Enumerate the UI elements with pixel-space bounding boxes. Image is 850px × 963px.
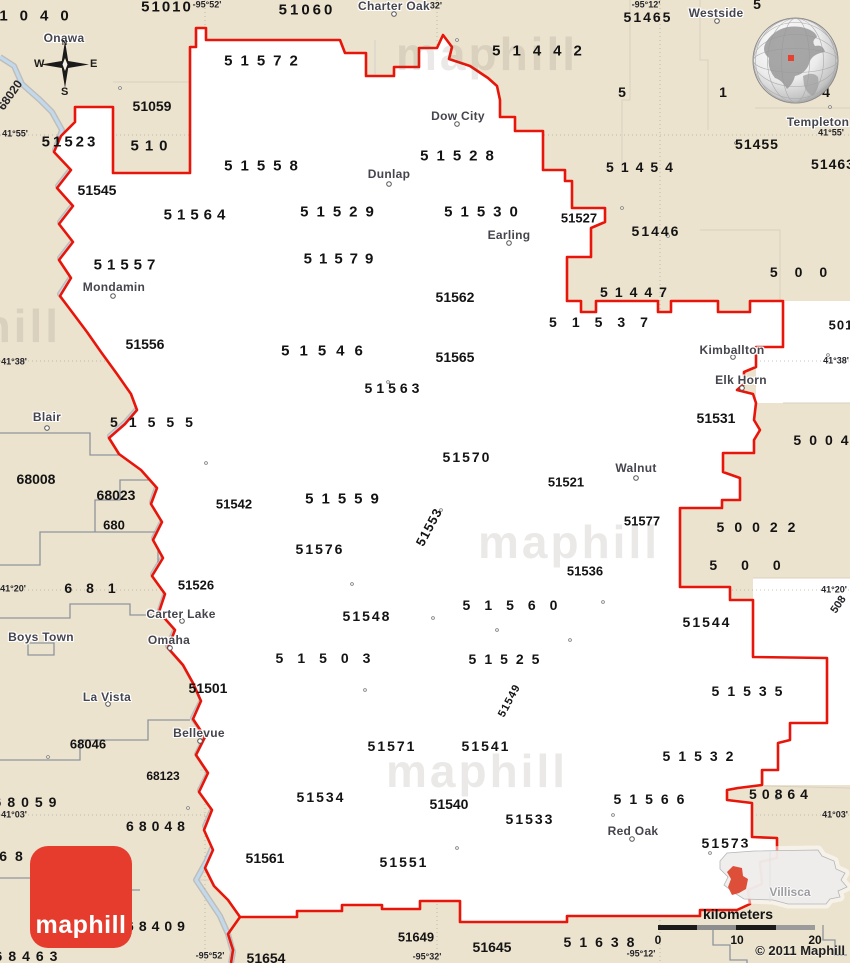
- zip-code-label: 51541: [462, 739, 511, 753]
- zip-code-label: 51565: [436, 350, 475, 364]
- zip-code-label: 51551: [380, 855, 429, 869]
- zip-code-label: 1: [719, 85, 727, 99]
- zip-code-label: 51577: [624, 515, 660, 528]
- compass-north-label: N: [62, 40, 67, 47]
- zip-code-label: 51564: [164, 208, 231, 223]
- zip-code-label: 1040: [0, 9, 81, 24]
- maphill-logo-label: maphill: [30, 911, 132, 940]
- zip-code-label: 68048: [126, 819, 190, 833]
- zip-code-label: 51010: [141, 0, 193, 15]
- coordinate-label: 41°38': [1, 358, 27, 367]
- zip-code-label: 51560: [463, 598, 572, 612]
- zip-code-label: 51446: [632, 224, 681, 238]
- zip-code-label: 51563: [365, 381, 424, 395]
- city-label: Boys Town: [8, 631, 74, 643]
- zip-code-label: 51558: [224, 159, 306, 174]
- zip-code-label: 51523: [42, 135, 99, 150]
- zip-code-label: 51465: [624, 10, 673, 24]
- zip-code-label: 51557: [94, 258, 161, 273]
- zip-code-label: 51649: [398, 931, 434, 944]
- coordinate-label: 68020: [0, 78, 24, 112]
- compass-west-label: W: [34, 58, 44, 70]
- zip-code-label: 51060: [279, 3, 336, 18]
- zip-code-label: 51535: [712, 684, 791, 698]
- zip-code-label: 51529: [300, 205, 382, 220]
- city-label: Bellevue: [173, 727, 225, 739]
- city-label: Omaha: [148, 634, 190, 646]
- zip-code-label: 68023: [97, 488, 136, 502]
- coordinate-label: 508: [829, 594, 849, 615]
- zip-code-label: 51527: [561, 212, 597, 225]
- zip-code-label: 68008: [17, 472, 56, 486]
- city-label: Carter Lake: [146, 608, 215, 620]
- zip-code-label: 51526: [178, 579, 214, 592]
- zip-code-label: 51571: [368, 739, 417, 753]
- zip-code-label: 51503: [276, 651, 385, 665]
- globe-locator-inset[interactable]: [751, 16, 840, 105]
- zip-code-label: 68463: [0, 949, 63, 963]
- coordinate-label: 41°55': [2, 130, 28, 139]
- zip-code-label: 51544: [683, 615, 732, 629]
- zip-code-label: 51654: [247, 951, 286, 963]
- inset-city-label: Villisca: [769, 885, 810, 899]
- coordinate-label: -95°52': [196, 952, 225, 961]
- zip-code-label: 51521: [548, 476, 584, 489]
- compass-south-label: S: [61, 86, 68, 98]
- city-label: Elk Horn: [715, 374, 767, 386]
- zip-code-label: 5: [753, 0, 761, 11]
- city-label: Dow City: [431, 110, 485, 122]
- zip-code-label: 51534: [297, 790, 346, 804]
- city-label: Westside: [689, 7, 744, 19]
- zip-code-label: 50022: [717, 520, 806, 534]
- zip-code-label: 68123: [146, 770, 179, 782]
- zip-code-label: 5004: [793, 433, 850, 447]
- zip-code-label: 51528: [420, 149, 502, 164]
- zip-code-label: 51501: [189, 681, 228, 695]
- compass-east-label: E: [90, 58, 97, 70]
- coordinate-label: 41°20': [0, 585, 26, 594]
- zip-code-label: 51562: [436, 290, 475, 304]
- zip-code-label: 51447: [600, 285, 674, 299]
- zip-code-label: 50864: [749, 787, 813, 801]
- globe-location-marker: [788, 55, 794, 61]
- zip-code-label: 51561: [246, 851, 285, 865]
- zip-code-label: 500: [770, 265, 844, 279]
- city-label: Red Oak: [608, 825, 659, 837]
- coordinate-label: 41°38': [823, 357, 849, 366]
- coordinate-label: 41°20': [821, 586, 847, 595]
- zip-code-label: 51455: [735, 137, 779, 151]
- maphill-watermark: maphill: [0, 303, 61, 349]
- zip-code-label: 68046: [70, 738, 106, 751]
- zip-code-label: 51536: [567, 565, 603, 578]
- zip-code-label: 51533: [506, 812, 555, 826]
- coordinate-label: -95°32': [413, 953, 442, 962]
- zip-code-label: 680: [103, 519, 125, 532]
- zip-code-label: 68409: [126, 919, 190, 933]
- zip-code-label: 51546: [281, 344, 373, 359]
- zip-code-label: 51549: [497, 683, 523, 720]
- zip-code-label: 51553: [414, 506, 445, 548]
- zip-code-label: 51537: [549, 315, 663, 329]
- zip-code-label: 51463: [811, 157, 850, 171]
- zip-code-label: 51555: [110, 415, 204, 429]
- zip-code-label: 5: [618, 85, 626, 99]
- zip-code-label: 51525: [469, 652, 548, 666]
- coordinate-label: 41°03': [1, 811, 27, 820]
- zip-code-label: 68059: [0, 795, 62, 809]
- copyright-text: © 2011 Maphill: [755, 943, 845, 958]
- zip-code-label: 51556: [126, 337, 165, 351]
- coordinate-label: -95°12': [632, 1, 661, 10]
- scale-tick-0: 0: [646, 933, 670, 947]
- maphill-logo[interactable]: maphill: [30, 846, 132, 948]
- zip-code-label: 500: [709, 558, 804, 572]
- map-labels-layer: maphillmaphillmaphillmaphill104051010510…: [0, 0, 850, 963]
- scale-bar-segments: [658, 925, 815, 930]
- coordinate-label: 32': [430, 2, 442, 11]
- zip-code-label: 51548: [343, 609, 392, 623]
- zip-code-label: 68: [0, 849, 31, 863]
- coordinate-label: 41°03': [822, 811, 848, 820]
- zip-code-label: 681: [64, 581, 129, 595]
- city-label: Templeton: [787, 116, 849, 128]
- zip-code-label: 51545: [78, 183, 117, 197]
- zip-code-label: 51570: [443, 450, 492, 464]
- city-label: Kimballton: [700, 344, 765, 356]
- city-label: La Vista: [83, 691, 131, 703]
- coordinate-label: -95°12': [627, 950, 656, 959]
- scale-bar: kilometers 0 10 20: [648, 906, 830, 948]
- zip-code-label: 51559: [305, 492, 387, 507]
- zip-code-label: 51540: [430, 797, 469, 811]
- city-label: Walnut: [615, 462, 656, 474]
- scale-tick-10: 10: [725, 933, 749, 947]
- map-canvas: maphillmaphillmaphillmaphill104051010510…: [0, 0, 850, 963]
- city-label: Charter Oak: [358, 0, 430, 12]
- zip-code-label: 51645: [473, 940, 512, 954]
- zip-code-label: 51638: [564, 935, 643, 949]
- zip-code-label: 51576: [296, 542, 345, 556]
- maphill-watermark: maphill: [386, 748, 568, 794]
- zip-code-label: 51572: [224, 54, 306, 69]
- city-label: Blair: [33, 411, 61, 423]
- city-label: Dunlap: [368, 168, 410, 180]
- zip-code-label: 51442: [492, 44, 594, 59]
- zip-code-label: 501: [829, 319, 850, 332]
- zip-code-label: 51531: [697, 411, 736, 425]
- state-locator-inset[interactable]: [712, 840, 850, 910]
- zip-code-label: 51454: [606, 160, 680, 174]
- zip-code-label: 51542: [216, 498, 252, 511]
- coordinate-label: 41°55': [818, 129, 844, 138]
- city-label: Mondamin: [83, 281, 145, 293]
- coordinate-label: -95°52': [193, 1, 222, 10]
- zip-code-label: 51530: [444, 205, 526, 220]
- zip-code-label: 510: [130, 139, 173, 154]
- zip-code-label: 51579: [304, 252, 381, 267]
- compass-rose: N W E S: [34, 32, 98, 98]
- city-label: Earling: [488, 229, 531, 241]
- zip-code-label: 51532: [663, 749, 742, 763]
- zip-code-label: 51566: [614, 792, 693, 806]
- zip-code-label: 51059: [133, 99, 172, 113]
